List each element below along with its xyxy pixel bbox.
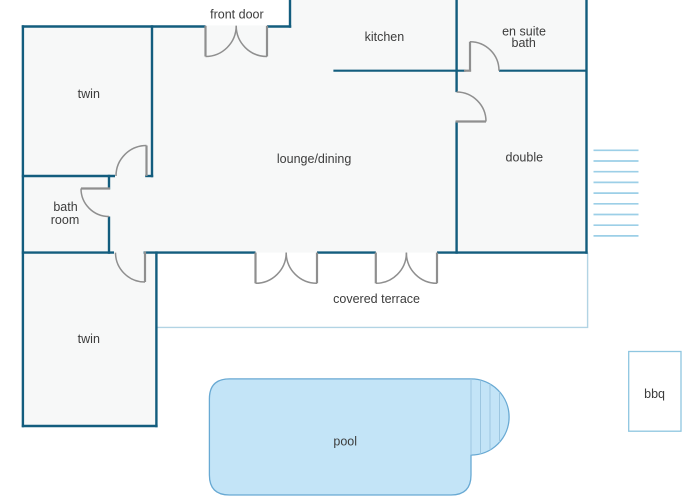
svg-text:bbq: bbq [644, 387, 665, 401]
svg-text:front door: front door [210, 8, 264, 22]
svg-text:covered terrace: covered terrace [333, 292, 420, 306]
svg-text:kitchen: kitchen [365, 30, 405, 44]
svg-text:twin: twin [78, 87, 100, 101]
svg-text:lounge/dining: lounge/dining [277, 152, 351, 166]
svg-text:bath: bath [53, 200, 77, 214]
svg-text:double: double [506, 151, 544, 165]
svg-text:bath: bath [512, 36, 536, 50]
svg-text:pool: pool [333, 435, 357, 449]
svg-text:room: room [51, 213, 79, 227]
svg-text:twin: twin [78, 332, 100, 346]
